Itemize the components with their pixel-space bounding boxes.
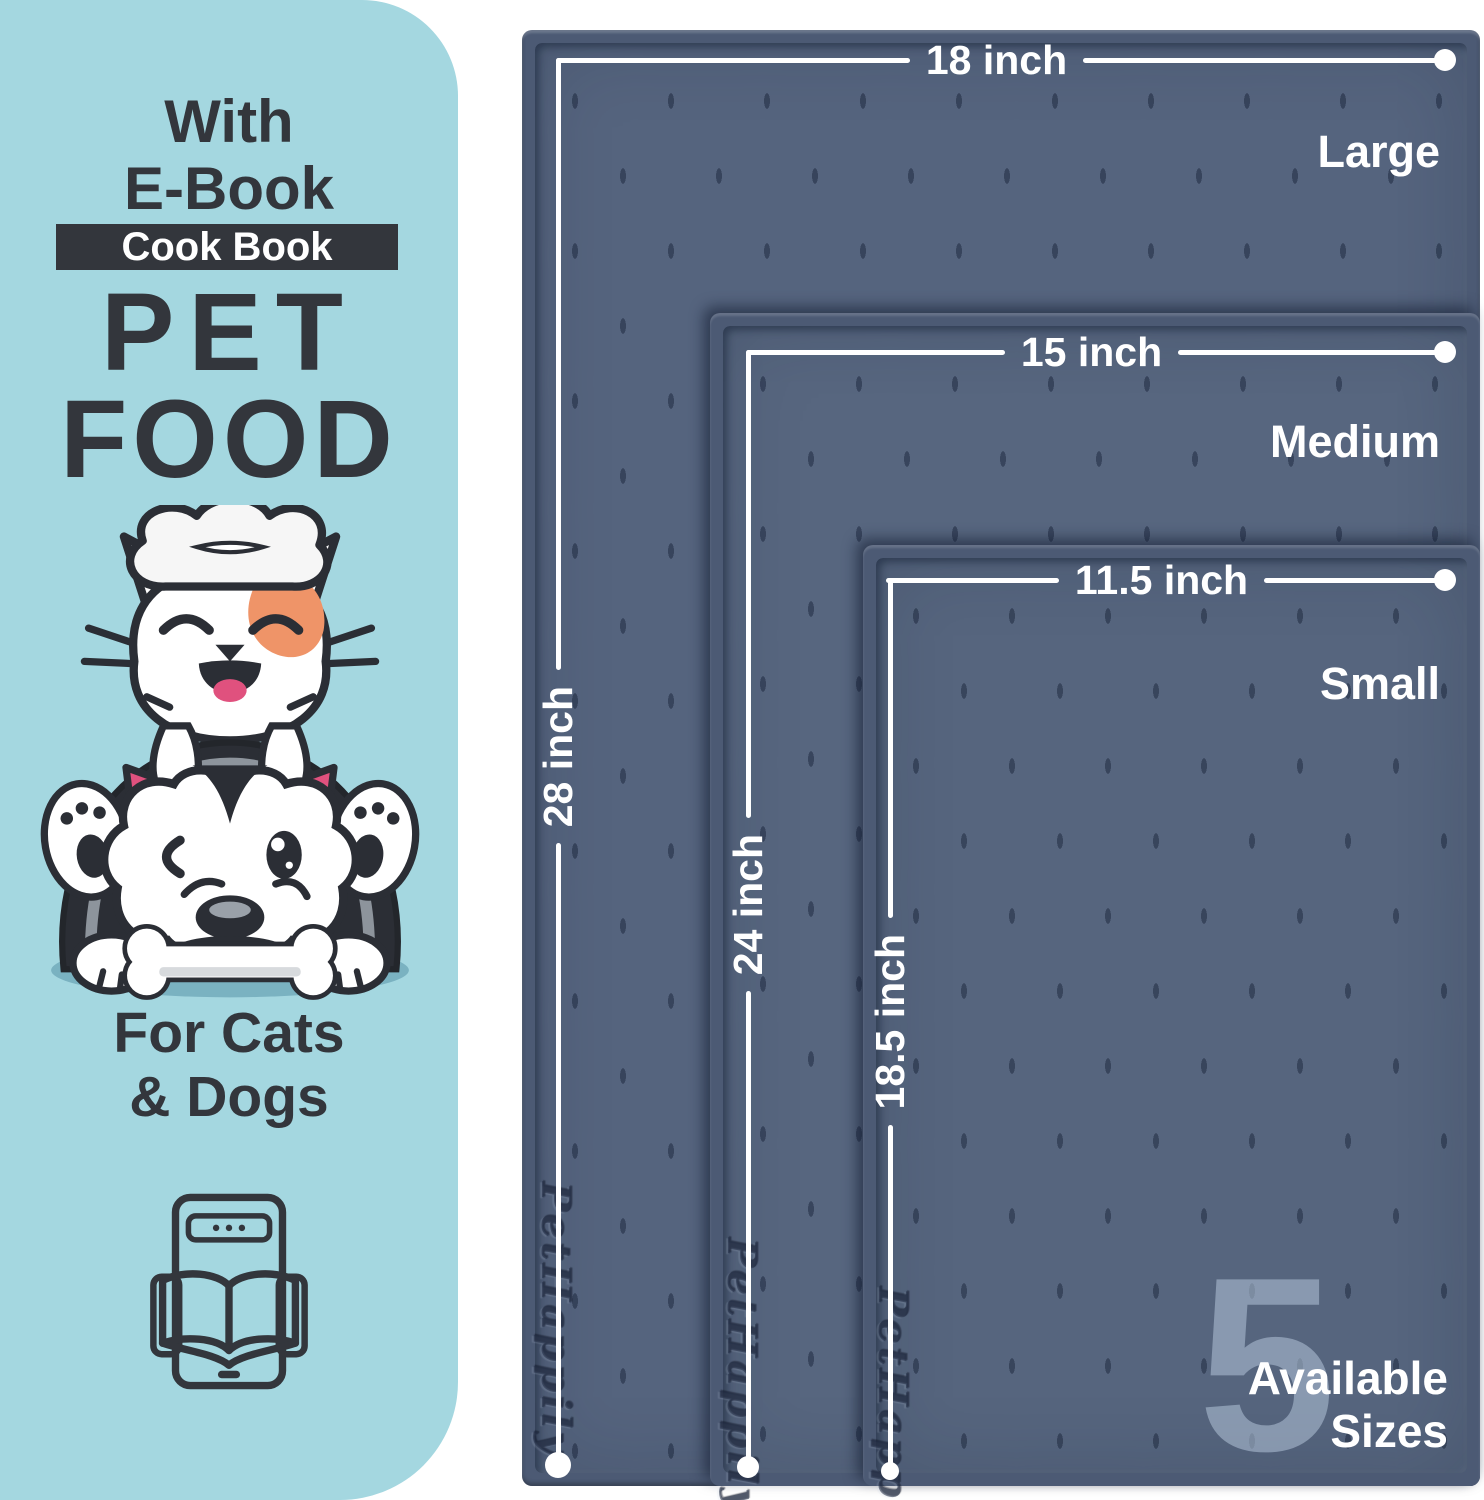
dimension-endpoint-dot [545,1452,571,1478]
ebook-tablet-icon [146,1190,312,1393]
dimension-line-segment [1178,350,1437,355]
dimension-line-segment [556,58,561,670]
product-infographic: With E-Book Cook Book PET FOOD [0,0,1484,1500]
audience-heading: For Cats & Dogs [0,1002,458,1130]
length-label-large: 28 inch [535,670,582,843]
with-ebook-line1: With [164,88,293,155]
width-label-large: 18 inch [910,37,1083,84]
length-dimension-large: 28 inch [534,58,582,1478]
width-dimension-medium: 15 inch [746,328,1456,376]
length-label-small: 18.5 inch [867,918,914,1125]
dimension-line-segment [746,991,751,1459]
width-label-small: 11.5 inch [1059,557,1264,604]
pet-food-title-line1: PET [0,280,458,387]
dimension-endpoint-dot [737,1456,759,1478]
available-sizes-label: Available Sizes [1248,1352,1448,1459]
dimension-line-segment [1264,578,1437,583]
dimension-line-segment [556,58,910,63]
with-ebook-heading: With E-Book [0,88,458,222]
available-sizes-line1: Available [1248,1352,1448,1405]
length-dimension-medium: 24 inch [724,350,772,1478]
pet-food-title-line2: FOOD [0,387,458,494]
dimension-line-segment [888,1125,893,1465]
left-info-panel: With E-Book Cook Book PET FOOD [0,0,458,1500]
width-dimension-large: 18 inch [556,36,1456,84]
dimension-endpoint-dot [1434,569,1456,591]
cook-book-badge: Cook Book [56,224,398,270]
dimension-line-segment [556,843,561,1455]
dimension-line-segment [746,350,1005,355]
dimension-line-segment [1083,58,1437,63]
length-label-medium: 24 inch [725,818,772,991]
available-sizes-line2: Sizes [1248,1405,1448,1458]
width-label-medium: 15 inch [1005,329,1178,376]
cat-chef-and-husky-illustration [22,505,438,1005]
cook-book-badge-label: Cook Book [121,225,332,270]
size-name-medium: Medium [1270,416,1440,468]
pet-food-title: PET FOOD [0,280,458,493]
size-name-small: Small [1320,658,1440,710]
audience-line2: & Dogs [129,1065,329,1129]
with-ebook-line2: E-Book [124,155,334,222]
dimension-line-segment [888,578,893,918]
length-dimension-small: 18.5 inch [866,578,914,1480]
size-name-large: Large [1317,126,1440,178]
audience-line1: For Cats [113,1001,344,1065]
width-dimension-small: 11.5 inch [886,556,1456,604]
dimension-endpoint-dot [881,1462,899,1480]
dimension-endpoint-dot [1434,49,1456,71]
dimension-line-segment [746,350,751,818]
dimension-endpoint-dot [1434,341,1456,363]
